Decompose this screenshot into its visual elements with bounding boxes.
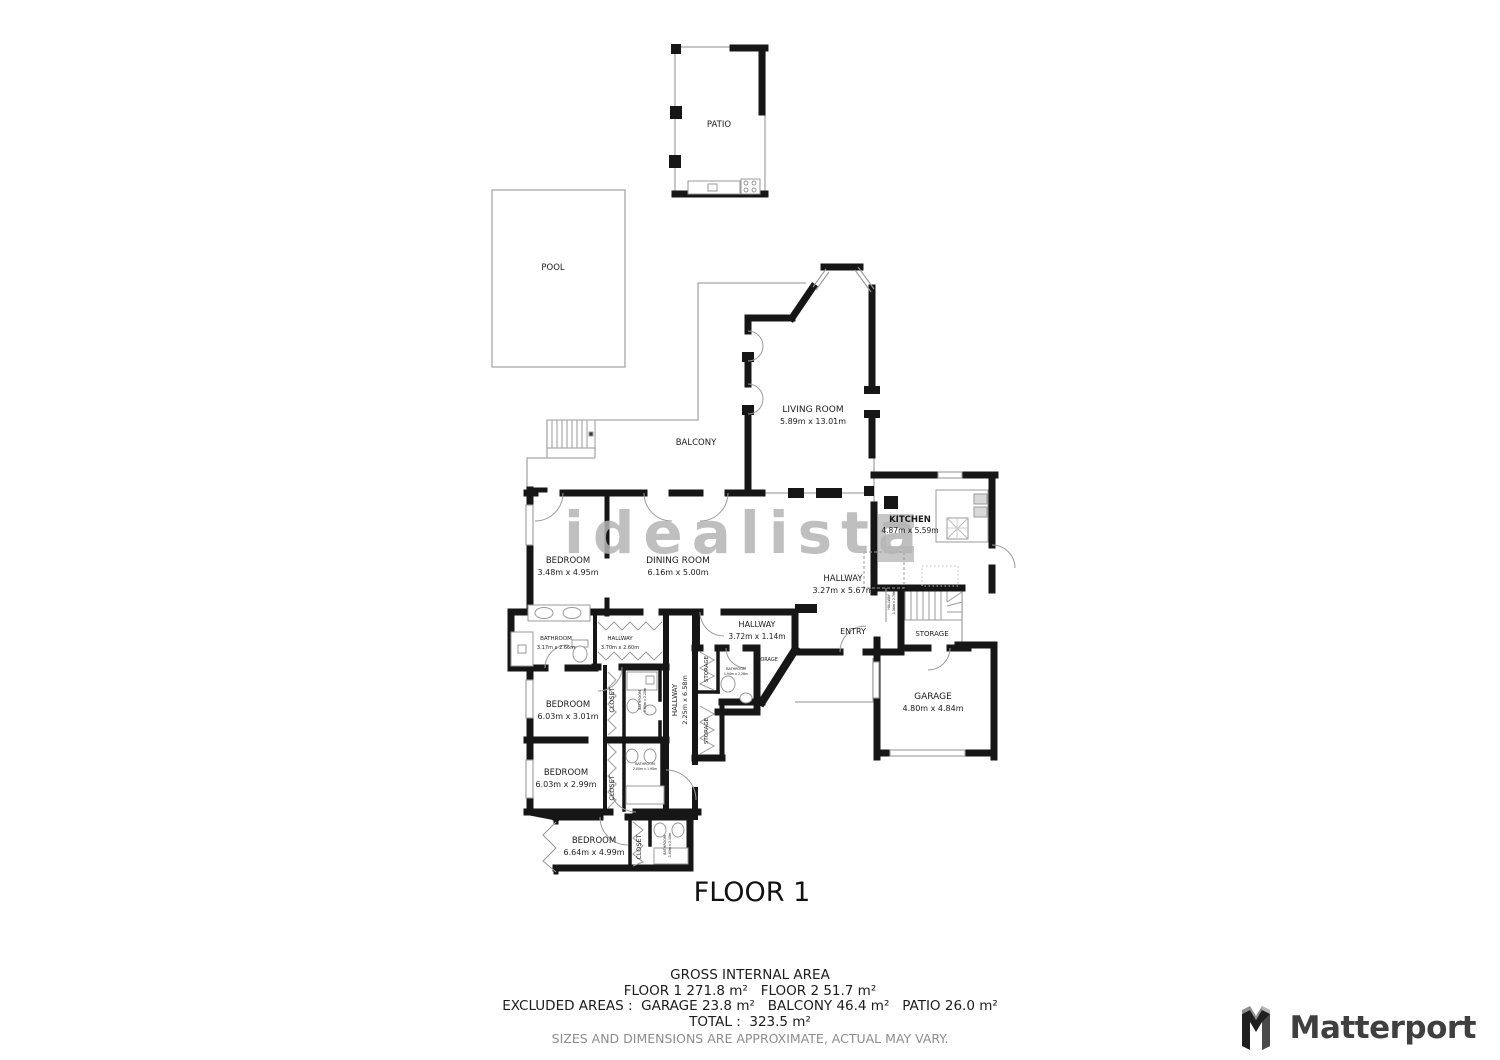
bathroom-2-label: BATHROOM bbox=[726, 667, 746, 671]
bedroom-3-label: BEDROOM bbox=[544, 768, 588, 778]
kitchen-dims: 4.87m x 5.59m bbox=[881, 526, 938, 535]
window bbox=[526, 760, 533, 798]
window bbox=[873, 662, 879, 698]
hallway-small-dims: 3.72m x 1.14m bbox=[728, 632, 785, 641]
grill-icon bbox=[741, 179, 760, 194]
toilet-icon bbox=[572, 640, 588, 662]
bathroom-3-dims: 1.80m x 2.20m bbox=[643, 688, 647, 712]
toilet-icon bbox=[644, 749, 656, 763]
closet-3-label: CLOSET bbox=[635, 834, 643, 859]
bathtub-icon bbox=[626, 786, 664, 804]
sink-icon bbox=[740, 693, 752, 703]
toilet-icon bbox=[672, 823, 684, 837]
floorplan-page: idealista PATIO POOL BALCONY LIVING ROOM… bbox=[0, 0, 1500, 1060]
storage-stairs-label: STORAGE bbox=[915, 630, 948, 638]
stove-icon bbox=[947, 518, 968, 539]
garage-label: GARAGE bbox=[914, 692, 952, 702]
balcony-stairs-icon bbox=[547, 420, 595, 448]
bathroom-1-dims: 3.17m x 2.66m bbox=[537, 645, 575, 651]
floor-areas: FLOOR 1 271.8 m² FLOOR 2 51.7 m² bbox=[0, 984, 1500, 1000]
bedroom-2-dims: 6.03m x 3.01m bbox=[537, 712, 598, 721]
porch-outline bbox=[795, 658, 873, 702]
hallway-bedrooms-label: HALLWAY bbox=[671, 683, 679, 716]
bathroom-4-label: BATHROOM bbox=[635, 762, 655, 766]
sink-icon bbox=[654, 823, 666, 837]
gross-internal-area-title: GROSS INTERNAL AREA bbox=[0, 968, 1500, 984]
hallway-closet-dims: 3.70m x 2.60m bbox=[601, 645, 639, 651]
hallway-small-label: HALLWAY bbox=[739, 620, 776, 629]
balcony-label: BALCONY bbox=[676, 438, 717, 448]
toilet-icon bbox=[721, 676, 735, 692]
matterport-logo: Matterport bbox=[1236, 1004, 1476, 1052]
bathroom-2-dims: 1.94m x 2.28m bbox=[724, 672, 748, 676]
walls-layer bbox=[511, 48, 995, 872]
window bbox=[526, 680, 533, 718]
matterport-icon bbox=[1236, 1004, 1280, 1052]
appliance-icon bbox=[974, 507, 987, 517]
garage-dims: 4.80m x 4.84m bbox=[902, 704, 963, 713]
bathroom-5-label: BATHROOM bbox=[663, 835, 667, 855]
sink-icon bbox=[535, 608, 553, 619]
living-room-label: LIVING ROOM bbox=[782, 405, 843, 415]
hallway-closet-label: HALLWAY bbox=[607, 636, 633, 642]
closet-2-label: CLOSET bbox=[608, 775, 616, 800]
bathroom-5-dims: 1.80m x 2.10m bbox=[668, 833, 672, 857]
pool-outline bbox=[492, 190, 625, 367]
pool-label: POOL bbox=[541, 263, 565, 273]
hallway-stair-label: HALLWAY bbox=[887, 593, 891, 610]
hallway-main-label: HALLWAY bbox=[823, 574, 863, 584]
bathroom-3-label: BATHROOM bbox=[638, 690, 642, 710]
matterport-wordmark: Matterport bbox=[1290, 1010, 1476, 1046]
idealista-watermark: idealista bbox=[564, 499, 926, 567]
sink-icon bbox=[626, 749, 638, 763]
window bbox=[526, 505, 533, 545]
bedroom-1-dims: 3.48m x 4.95m bbox=[537, 568, 598, 577]
bedroom-3-dims: 6.03m x 2.99m bbox=[535, 780, 596, 789]
balcony-outline bbox=[595, 283, 806, 420]
hallway-bedrooms-dims: 2.25m x 6.58m bbox=[681, 675, 689, 725]
kitchen-label: KITCHEN bbox=[889, 515, 931, 525]
bathroom-1-label: BATHROOM bbox=[540, 636, 572, 642]
window bbox=[938, 472, 962, 478]
main-stairs-icon bbox=[905, 588, 962, 620]
living-room-dims: 5.89m x 13.01m bbox=[780, 417, 846, 426]
bedroom-2-label: BEDROOM bbox=[546, 700, 590, 710]
storage-lower-label: STORAGE bbox=[704, 717, 710, 744]
hallway-stair-dims: 1.06m x 2.76m bbox=[892, 590, 896, 614]
storage-upper-label: STORAGE bbox=[704, 655, 710, 682]
appliance-icon bbox=[974, 494, 987, 504]
floor-title: FLOOR 1 bbox=[694, 877, 811, 908]
bedroom-4-dims: 6.64m x 4.99m bbox=[563, 848, 624, 857]
hallway-main-dims: 3.27m x 5.67m bbox=[812, 586, 873, 595]
dining-room-dims: 6.16m x 5.00m bbox=[647, 568, 708, 577]
entry-label: ENTRY bbox=[840, 627, 866, 636]
bedroom-4-label: BEDROOM bbox=[572, 836, 616, 846]
garage-door bbox=[890, 750, 965, 756]
balcony-outline-left bbox=[527, 420, 547, 490]
hatch-area bbox=[922, 566, 958, 586]
storage-entry-label: STORAGE bbox=[754, 657, 778, 663]
sink-icon bbox=[563, 608, 581, 619]
closet-1-label: CLOSET bbox=[608, 687, 616, 712]
dining-room-label: DINING ROOM bbox=[646, 556, 710, 566]
floorplan-drawing: idealista PATIO POOL BALCONY LIVING ROOM… bbox=[0, 0, 1500, 1060]
bedroom-1-label: BEDROOM bbox=[546, 556, 590, 566]
patio-label: PATIO bbox=[707, 120, 731, 130]
bathroom-4-dims: 2.00m x 1.90m bbox=[633, 767, 657, 771]
patio-sink-icon bbox=[708, 184, 717, 191]
